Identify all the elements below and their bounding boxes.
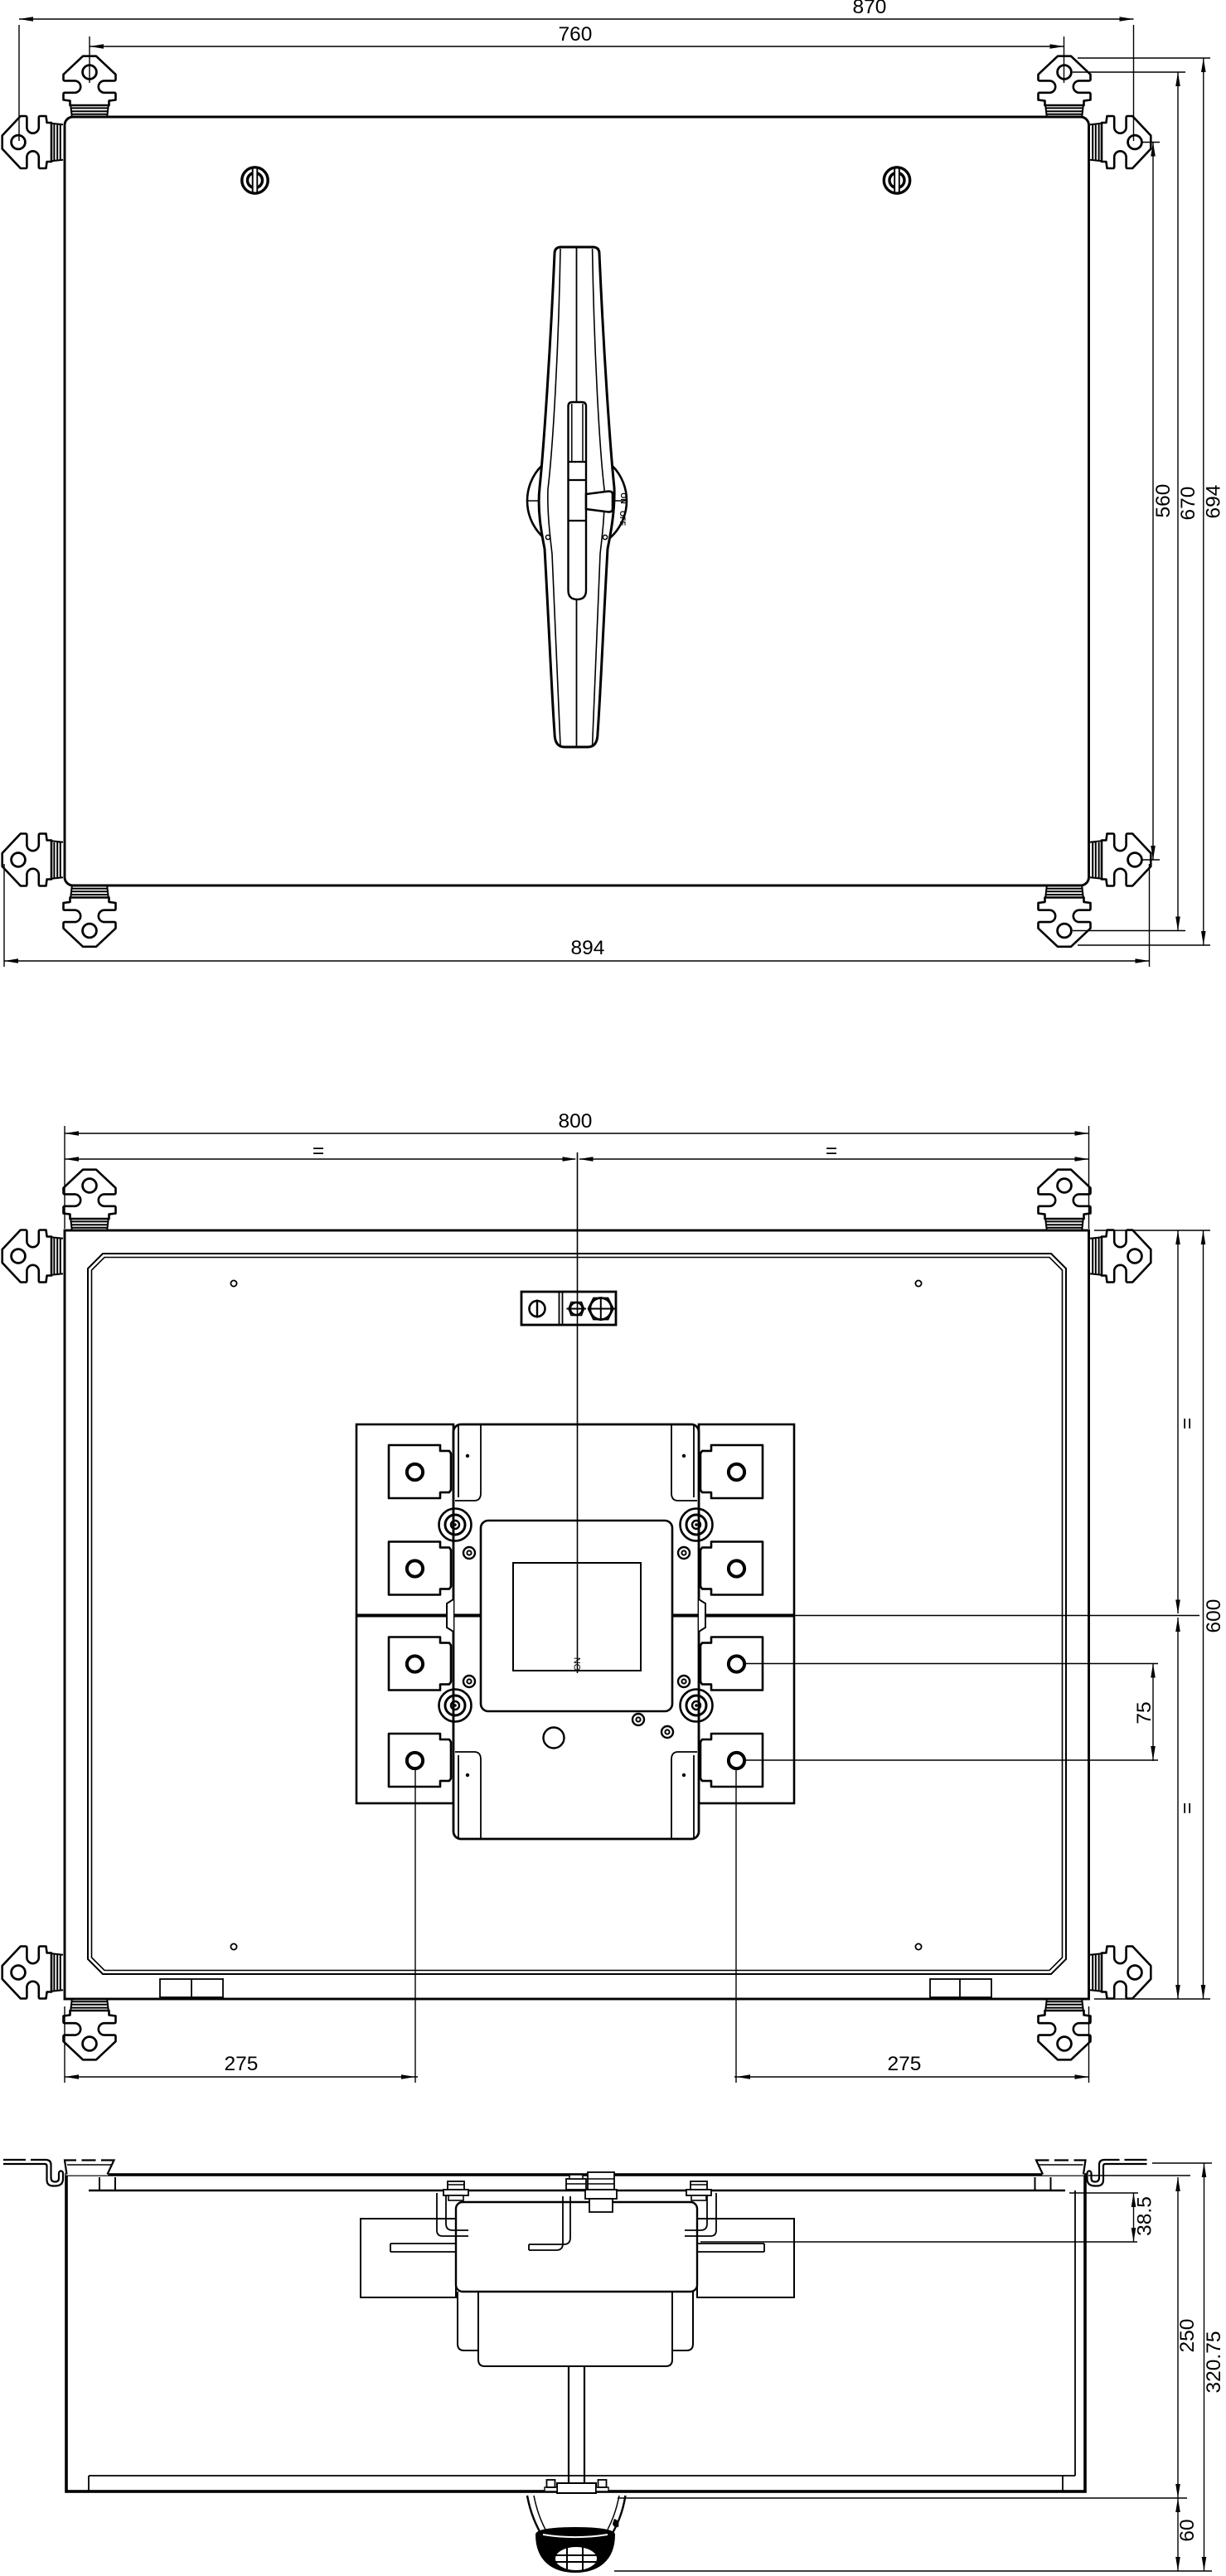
svg-text:800: 800 [559, 1110, 593, 1133]
svg-text:275: 275 [888, 2053, 922, 2075]
svg-text:560: 560 [1152, 484, 1175, 518]
svg-text:694: 694 [1203, 485, 1225, 519]
svg-text:275: 275 [225, 2053, 259, 2075]
svg-text:670: 670 [1177, 487, 1199, 521]
svg-text:=: = [826, 1140, 837, 1162]
svg-text:250: 250 [1176, 2319, 1199, 2353]
svg-text:38.5: 38.5 [1134, 2196, 1156, 2236]
svg-text:ON: ON [619, 492, 628, 504]
svg-text:760: 760 [559, 23, 593, 46]
svg-text:870: 870 [853, 0, 887, 18]
svg-text:=: = [1176, 1418, 1199, 1429]
svg-text:=: = [313, 1140, 324, 1162]
svg-text:OFF: OFF [618, 511, 627, 526]
svg-text:894: 894 [571, 937, 605, 959]
svg-text:75: 75 [1133, 1701, 1156, 1724]
svg-text:60: 60 [1176, 2519, 1199, 2541]
svg-text:320.75: 320.75 [1203, 2331, 1225, 2394]
svg-text:600: 600 [1203, 1599, 1225, 1633]
svg-text:=: = [1176, 1802, 1199, 1814]
